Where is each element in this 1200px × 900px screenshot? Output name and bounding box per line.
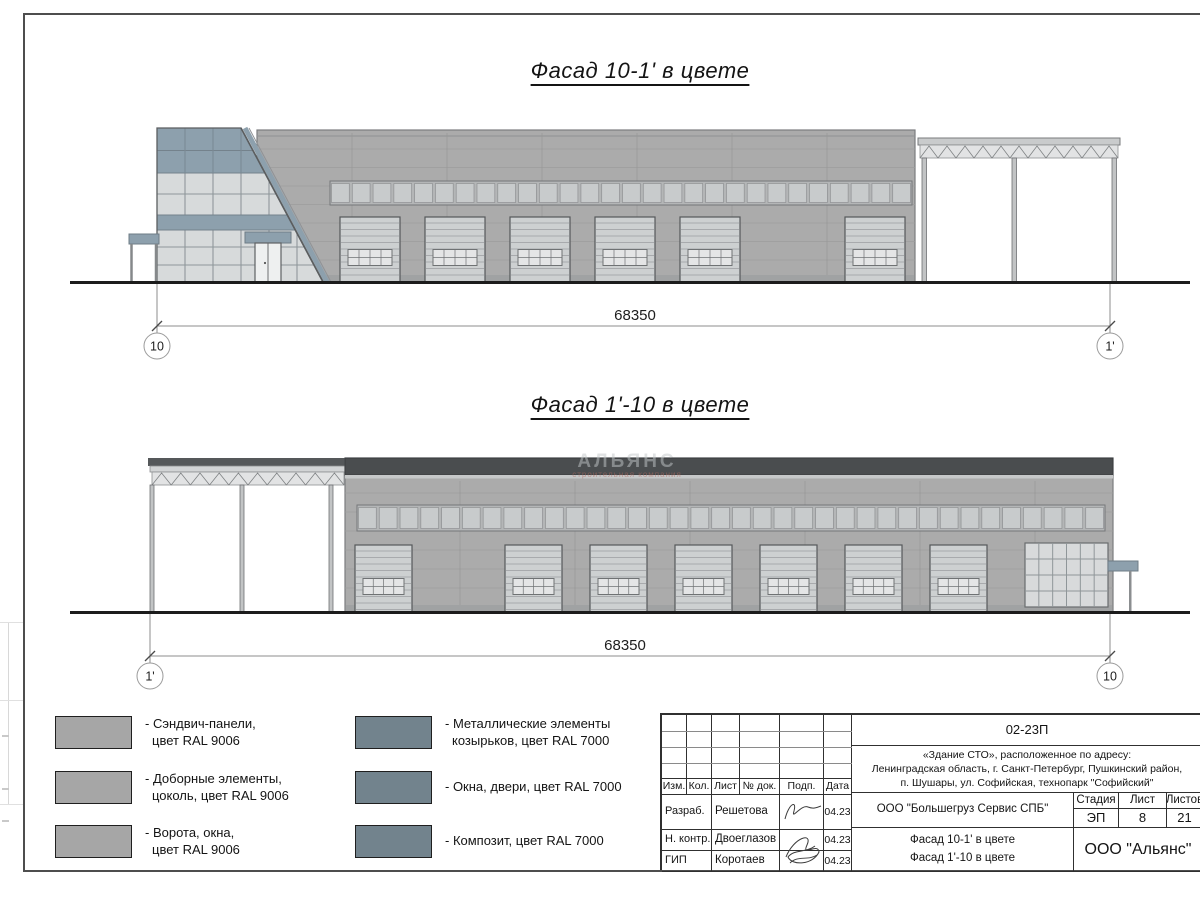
sheet-value: 8: [1119, 809, 1167, 828]
dimension-assembly: 68350 10 1': [144, 284, 1123, 359]
signature-cell: [780, 795, 824, 830]
legend-label: цвет RAL 9006: [145, 733, 256, 749]
col-doc: № док.: [740, 779, 780, 795]
legend-label: - Окна, двери, цвет RAL 7000: [445, 779, 622, 795]
small-entrance-canopy: [129, 234, 159, 281]
legend-label: цоколь, цвет RAL 9006: [145, 788, 289, 804]
facade2-title: Фасад 1'-10 в цвете: [80, 392, 1200, 418]
legend-item: - Ворота, окна,цвет RAL 9006: [55, 825, 240, 858]
legend-label: - Доборные элементы,: [145, 771, 289, 787]
open-carport-canopy: [148, 458, 348, 612]
date-razrab: 04.23: [824, 795, 852, 830]
title-block: Изм. Кол. Лист № док. Подп. Дата Разраб.…: [660, 713, 1200, 870]
legend-swatch-ral7000: [355, 825, 432, 858]
stage-value: ЭП: [1074, 809, 1119, 828]
legend-swatch-ral9006: [55, 825, 132, 858]
legend-label: - Сэндвич-панели,: [145, 716, 256, 732]
stage-label: Стадия: [1074, 793, 1119, 809]
margin-mark: [2, 820, 9, 822]
facade1-title: Фасад 10-1' в цвете: [80, 58, 1200, 84]
legend-swatch-ral7000: [355, 771, 432, 804]
role-gip: ГИП: [662, 851, 712, 872]
col-podp: Подп.: [780, 779, 824, 795]
date-nkontr: 04.23: [824, 830, 852, 851]
legend-swatch-ral9006: [55, 716, 132, 749]
dimension-value: 68350: [614, 307, 656, 324]
dimension-assembly: 68350 1' 10: [137, 614, 1123, 689]
axis-label-right: 10: [1103, 670, 1117, 684]
facade2-title-text: Фасад 1'-10 в цвете: [531, 392, 750, 417]
col-kol: Кол.: [687, 779, 712, 795]
customer-company: ООО "Большегруз Сервис СПБ": [852, 793, 1074, 828]
col-list: Лист: [712, 779, 740, 795]
clerestory-window-band: [357, 505, 1105, 531]
sheets-label: Листов: [1167, 793, 1200, 809]
facade1-title-text: Фасад 10-1' в цвете: [531, 58, 750, 83]
signature-cell: [780, 830, 824, 851]
legend-label: - Композит, цвет RAL 7000: [445, 833, 604, 849]
watermark-tagline: строительная компания: [572, 470, 682, 479]
legend-label: - Металлические элементы: [445, 716, 610, 732]
axis-label-right: 1': [1105, 340, 1114, 354]
project-address: «Здание СТО», расположенное по адресу: Л…: [852, 746, 1200, 793]
role-razrab: Разраб.: [662, 795, 712, 830]
sheet-label: Лист: [1119, 793, 1167, 809]
margin-mark: [8, 622, 9, 804]
facade-drawing-10-1: 68350 10 1': [65, 105, 1195, 365]
name-razrab: Решетова: [712, 795, 780, 830]
margin-mark: [2, 735, 9, 737]
margin-mark: [2, 788, 9, 790]
date-gip: 04.23: [824, 851, 852, 872]
legend-label: цвет RAL 9006: [145, 842, 240, 858]
legend-swatch-ral9006: [55, 771, 132, 804]
right-glazing-and-canopy: [1025, 543, 1138, 612]
legend-item: - Сэндвич-панели,цвет RAL 9006: [55, 716, 256, 749]
margin-mark: [0, 700, 23, 701]
sheet-content: Фасад 10-1' в цвете Фасад 1'-10 в цвете: [852, 828, 1074, 872]
name-gip: Коротаев: [712, 851, 780, 872]
role-nkontr: Н. контр.: [662, 830, 712, 851]
builder-watermark: АЛЬЯНС строительная компания: [572, 451, 682, 479]
legend-item: - Композит, цвет RAL 7000: [355, 825, 604, 858]
legend-label: - Ворота, окна,: [145, 825, 240, 841]
dimension-value: 68350: [604, 637, 646, 654]
clerestory-window-band: [330, 181, 912, 205]
legend-label: козырьков, цвет RAL 7000: [445, 733, 610, 749]
col-data: Дата: [824, 779, 852, 795]
axis-label-left: 1': [145, 670, 154, 684]
margin-mark: [0, 622, 23, 623]
legend-item: - Окна, двери, цвет RAL 7000: [355, 771, 622, 804]
col-izm: Изм.: [662, 779, 687, 795]
design-org: ООО "Альянс": [1074, 828, 1200, 872]
signature-cell: [780, 851, 824, 872]
name-nkontr: Двоеглазов: [712, 830, 780, 851]
watermark-brand: АЛЬЯНС: [577, 451, 676, 472]
legend-item: - Доборные элементы,цоколь, цвет RAL 900…: [55, 771, 289, 804]
axis-label-left: 10: [150, 340, 164, 354]
facade-drawing-1-10: АЛЬЯНС строительная компания 68350 1' 10: [65, 435, 1195, 695]
sheets-value: 21: [1167, 809, 1200, 828]
legend-swatch-ral7000: [355, 716, 432, 749]
open-carport-canopy: [918, 138, 1120, 282]
legend-item: - Металлические элементыкозырьков, цвет …: [355, 716, 610, 749]
margin-mark: [0, 804, 23, 805]
doc-number: 02-23П: [852, 715, 1200, 746]
drawing-sheet: { "facade1": { "title": "Фасад 10-1' в ц…: [0, 0, 1200, 900]
